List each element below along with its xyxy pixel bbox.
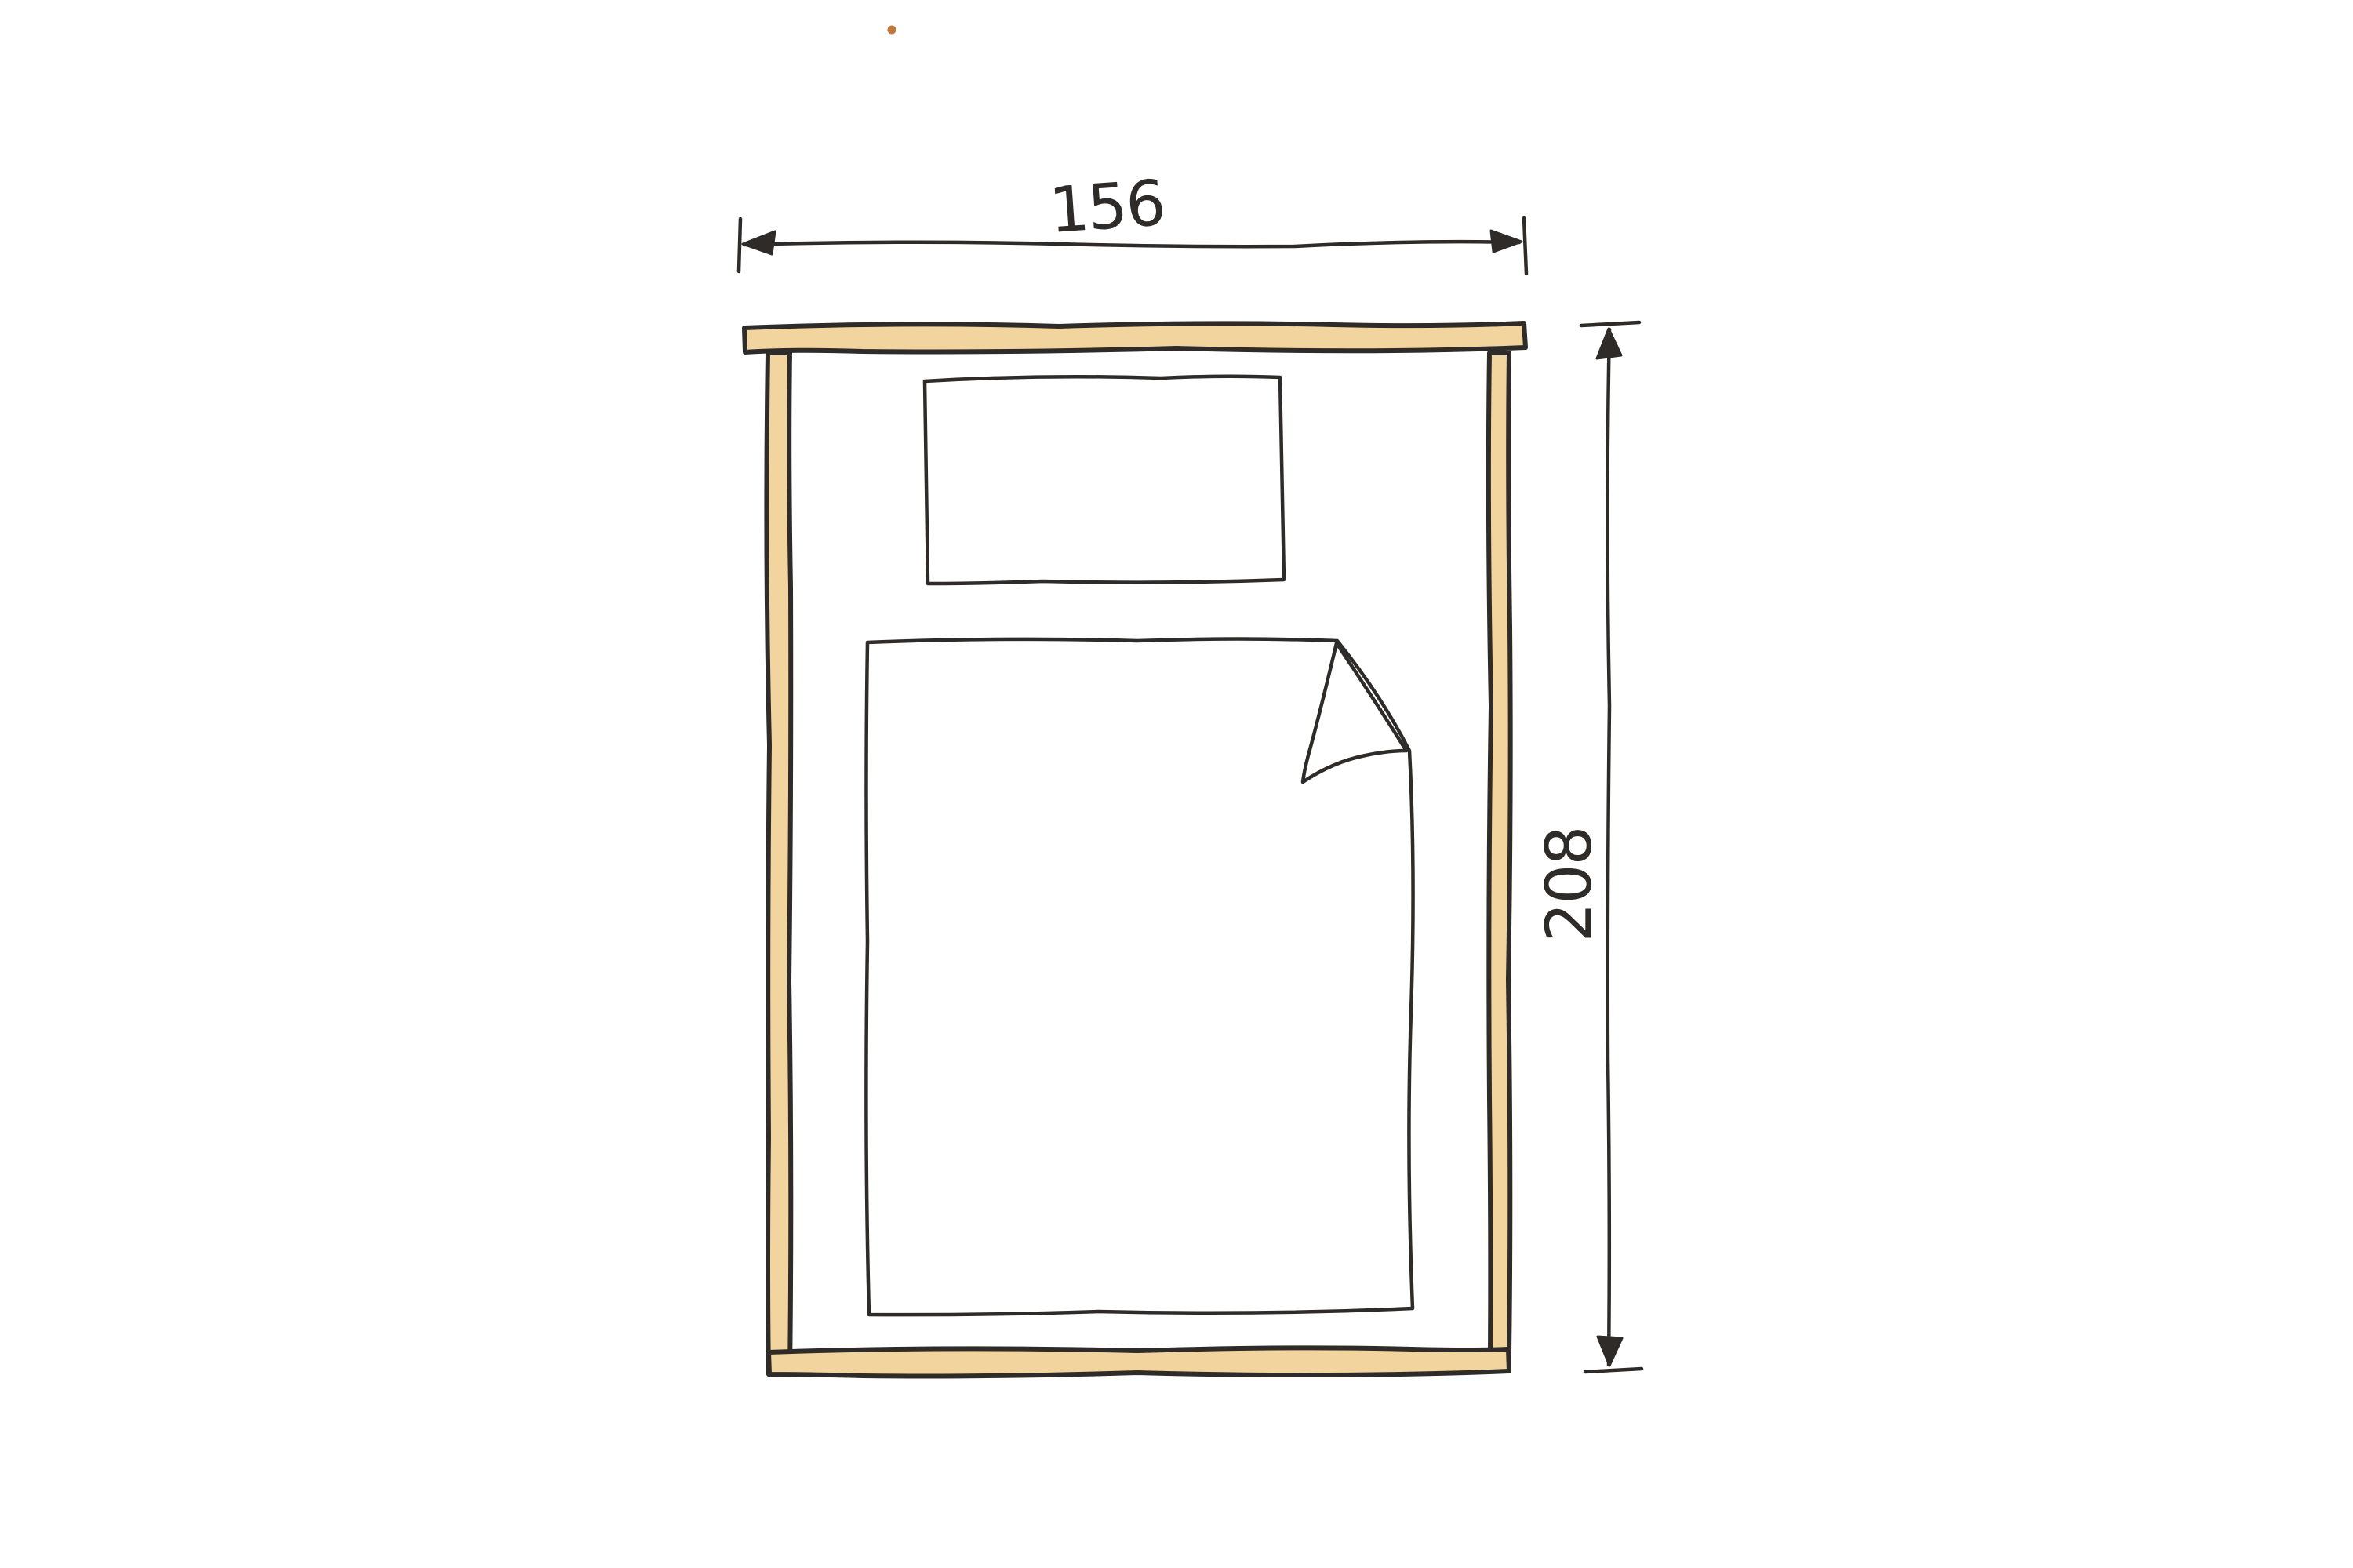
height-dimension-label: 208: [1533, 828, 1606, 943]
height-dimension-tick-top: [1581, 322, 1639, 326]
width-dimension-line: [744, 242, 1519, 246]
paper-speck: [888, 26, 896, 35]
foot-rail: [769, 1348, 1509, 1376]
width-arrow-left-icon: [743, 231, 775, 254]
right-side-rail: [1489, 353, 1511, 1352]
width-arrow-right-icon: [1491, 231, 1522, 252]
height-arrow-down-icon: [1598, 1337, 1622, 1366]
width-dimension: 156: [739, 166, 1526, 274]
sketch-canvas: 156 208: [0, 0, 2353, 1568]
left-side-rail: [766, 353, 791, 1374]
height-dimension-line: [1608, 329, 1610, 1365]
height-dimension: 208: [1533, 322, 1642, 1372]
width-dimension-label: 156: [1047, 166, 1167, 247]
bed-sketch-drawing: 156 208: [0, 0, 2353, 1568]
pillow: [925, 377, 1284, 584]
height-arrow-up-icon: [1597, 329, 1621, 358]
width-dimension-tick-right: [1524, 218, 1526, 274]
height-dimension-tick-bottom: [1585, 1369, 1642, 1372]
headboard-rail: [744, 323, 1526, 352]
width-dimension-tick-left: [739, 219, 740, 271]
